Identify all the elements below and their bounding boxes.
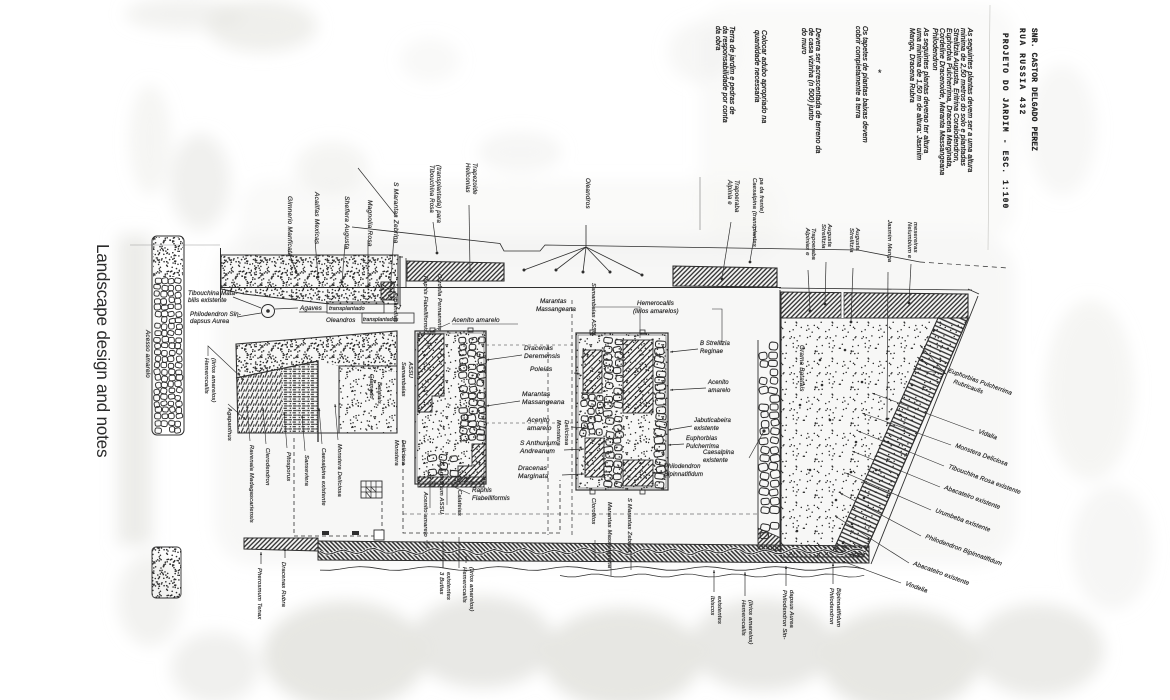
svg-text:existente: existente bbox=[694, 426, 719, 432]
svg-text:Ravenala Madagascariensis: Ravenala Madagascariensis bbox=[248, 445, 254, 523]
svg-text:existentes: existentes bbox=[716, 596, 722, 624]
svg-text:mesereiras: mesereiras bbox=[912, 222, 918, 253]
svg-text:Landscape design and notes: Landscape design and notes bbox=[93, 244, 113, 457]
svg-text:Nelumbium e: Nelumbium e bbox=[906, 222, 912, 259]
svg-text:Raphis Flabelliformis: Raphis Flabelliformis bbox=[422, 276, 428, 332]
svg-text:Ibiscos: Ibiscos bbox=[709, 596, 715, 615]
svg-text:Acenito amarelo: Acenito amarelo bbox=[451, 317, 500, 324]
svg-text:Terra de jardim e pedras de: Terra de jardim e pedras de bbox=[728, 26, 735, 114]
svg-text:Agaves: Agaves bbox=[299, 305, 323, 312]
svg-text:Colocar adubo apropriado na: Colocar adubo apropriado na bbox=[760, 30, 767, 123]
svg-text:Strelitzia Augusta, Eritrina C: Strelitzia Augusta, Eritrina Coralodendr… bbox=[952, 28, 959, 163]
svg-text:Jabuticabeira: Jabuticabeira bbox=[693, 418, 732, 424]
svg-text:Marantas: Marantas bbox=[522, 391, 551, 398]
svg-text:Pitosporus: Pitosporus bbox=[285, 452, 291, 481]
svg-text:Clorofitos: Clorofitos bbox=[590, 498, 596, 524]
svg-text:(lirios amarelos): (lirios amarelos) bbox=[633, 308, 679, 315]
svg-text:Hemerocallis: Hemerocallis bbox=[740, 600, 746, 636]
svg-text:da obra: da obra bbox=[714, 26, 721, 50]
svg-text:Monstera Deliciosa: Monstera Deliciosa bbox=[336, 444, 342, 497]
svg-text:Tibouchina Rosa: Tibouchina Rosa bbox=[428, 165, 434, 213]
svg-text:Cordelia Permanente: Cordelia Permanente bbox=[436, 274, 442, 331]
svg-text:Trapoeraba: Trapoeraba bbox=[733, 180, 739, 213]
svg-text:Strelitzia: Strelitzia bbox=[848, 228, 854, 253]
svg-text:Alpinia e: Alpinia e bbox=[726, 179, 732, 205]
svg-text:ASSU: ASSU bbox=[407, 361, 413, 379]
svg-text:3 Butias: 3 Butias bbox=[438, 572, 444, 595]
svg-text:Bipinnatifidum: Bipinnatifidum bbox=[835, 588, 841, 627]
svg-text:Trapezoide: Trapezoide bbox=[471, 163, 477, 195]
svg-text:Euphorbia Pulcherrima, Dracena: Euphorbia Pulcherrima, Dracena Marginata… bbox=[945, 28, 952, 169]
svg-text:Samambaias: Samambaias bbox=[400, 362, 406, 397]
svg-text:Bipinnatifidum: Bipinnatifidum bbox=[664, 472, 703, 478]
svg-text:Sheflera Augusta: Sheflera Augusta bbox=[343, 196, 350, 250]
svg-text:Devera ser acrescentada de ter: Devera ser acrescentada de terreno da bbox=[814, 28, 821, 154]
svg-text:Sanseviera: Sanseviera bbox=[303, 455, 309, 487]
svg-text:Dracenas Rubra: Dracenas Rubra bbox=[280, 562, 286, 608]
svg-text:dapsus Aurea: dapsus Aurea bbox=[788, 590, 794, 629]
svg-text:da responsabilidade por conta: da responsabilidade por conta bbox=[721, 26, 728, 123]
svg-text:Batatais: Batatais bbox=[376, 382, 382, 404]
svg-text:Augusta: Augusta bbox=[826, 223, 832, 248]
svg-text:Philodendron Sin-: Philodendron Sin- bbox=[190, 311, 241, 318]
svg-text:Poleias: Poleias bbox=[530, 366, 553, 373]
svg-text:(lirios amarelos): (lirios amarelos) bbox=[747, 600, 753, 645]
svg-text:Acalifas Mexicas: Acalifas Mexicas bbox=[313, 191, 320, 245]
svg-text:S Marantas Zebrina: S Marantas Zebrina bbox=[626, 498, 632, 553]
svg-text:(transplantada) para: (transplantada) para bbox=[435, 165, 441, 223]
svg-text:Vindelia: Vindelia bbox=[904, 580, 928, 595]
svg-text:Heliconias: Heliconias bbox=[464, 163, 470, 193]
svg-text:S Anthurium: S Anthurium bbox=[520, 440, 558, 447]
svg-text:Os tapetes de plantas baixas d: Os tapetes de plantas baixas devem bbox=[861, 26, 868, 143]
svg-text:Grama Batatais: Grama Batatais bbox=[798, 345, 805, 392]
svg-text:Caesalpina: Caesalpina bbox=[703, 450, 735, 456]
svg-text:Agapanthus: Agapanthus bbox=[226, 407, 232, 441]
svg-text:de casa vizinha (n 500) junto: de casa vizinha (n 500) junto bbox=[807, 28, 814, 120]
svg-text:uma minima de 1,50 m de altura: uma minima de 1,50 m de altura: Jasmim bbox=[915, 28, 922, 160]
svg-text:pa da frente): pa da frente) bbox=[758, 177, 764, 213]
svg-text:Samambaias ASSU: Samambaias ASSU bbox=[590, 283, 596, 336]
svg-text:Philodendron: Philodendron bbox=[664, 464, 701, 470]
svg-text:Clerodendron: Clerodendron bbox=[264, 448, 270, 486]
svg-text:Calateias: Calateias bbox=[456, 490, 462, 516]
svg-text:As seguintes plantas devem ser: As seguintes plantas devem ser a uma alt… bbox=[966, 27, 973, 172]
svg-text:Dracenas: Dracenas bbox=[524, 345, 554, 352]
svg-text:B Strelitzia: B Strelitzia bbox=[700, 341, 730, 347]
svg-text:Caesalpina existente: Caesalpina existente bbox=[320, 448, 326, 506]
svg-text:Cordeline Dracenoide, Maranta: Cordeline Dracenoide, Maranta Massangean… bbox=[938, 28, 945, 175]
svg-text:Marantas Massangeana: Marantas Massangeana bbox=[606, 502, 612, 569]
svg-text:Augusta: Augusta bbox=[854, 227, 860, 252]
svg-text:Tibouchina Mata-: Tibouchina Mata- bbox=[188, 290, 237, 297]
svg-text:Massangeana: Massangeana bbox=[522, 399, 565, 406]
svg-text:As seguintes plantas deverao t: As seguintes plantas deverao ter altura bbox=[922, 27, 929, 153]
svg-text:Philodendron: Philodendron bbox=[931, 28, 938, 70]
svg-text:Monstera: Monstera bbox=[555, 420, 561, 446]
svg-text:PROJETO DO JARDIM - ESC. 1:1: PROJETO DO JARDIM - ESC. 1:100 bbox=[1000, 33, 1008, 209]
svg-text:Gramado: Gramado bbox=[368, 374, 374, 399]
svg-text:Strelitzia: Strelitzia bbox=[820, 224, 826, 249]
svg-text:(lirios amarelos): (lirios amarelos) bbox=[468, 567, 474, 612]
svg-text:(lirios amarelos): (lirios amarelos) bbox=[210, 358, 216, 403]
svg-text:Hemerocallis: Hemerocallis bbox=[461, 567, 467, 603]
svg-text:minima de 2,50 metros do solo: minima de 2,50 metros do solo e plantada… bbox=[959, 28, 966, 166]
svg-text:do muro: do muro bbox=[800, 28, 807, 54]
svg-text:Acenito: Acenito bbox=[526, 417, 550, 424]
svg-text:Hemerocallis: Hemerocallis bbox=[203, 358, 209, 394]
svg-text:Deliciosa: Deliciosa bbox=[563, 420, 569, 446]
svg-text:Asplundias: Asplundias bbox=[392, 291, 398, 322]
svg-text:Andreanum: Andreanum bbox=[519, 448, 555, 455]
svg-text:S Marantas Zebrina: S Marantas Zebrina bbox=[392, 182, 399, 244]
svg-text:Acenito amarelo: Acenito amarelo bbox=[422, 491, 428, 537]
svg-text:Marantas: Marantas bbox=[540, 298, 567, 305]
svg-text:Trapoeraba: Trapoeraba bbox=[810, 228, 816, 261]
svg-text:dapsus Aurea: dapsus Aurea bbox=[190, 318, 230, 325]
svg-text:Oleandros: Oleandros bbox=[326, 317, 355, 324]
svg-text:Acesso amarelo: Acesso amarelo bbox=[144, 329, 151, 378]
svg-text:Monstera: Monstera bbox=[393, 440, 399, 466]
svg-text:existente: existente bbox=[703, 458, 728, 464]
svg-text:Hemerocallis: Hemerocallis bbox=[637, 300, 674, 307]
svg-text:Euphorbias: Euphorbias bbox=[686, 436, 717, 442]
svg-text:Gimnerio Manficata: Gimnerio Manficata bbox=[286, 196, 293, 257]
svg-text:S Anthurium ASSU: S Anthurium ASSU bbox=[438, 462, 444, 515]
svg-text:Philodendron: Philodendron bbox=[828, 588, 834, 625]
svg-text:Dracenas: Dracenas bbox=[518, 465, 548, 472]
svg-text:Raphis: Raphis bbox=[472, 487, 492, 494]
svg-text:Jasmim Manga: Jasmim Manga bbox=[886, 219, 892, 263]
svg-text:amarelo: amarelo bbox=[527, 425, 552, 432]
svg-text:Magnolia Rosa: Magnolia Rosa bbox=[366, 200, 373, 247]
svg-text:Deremensis: Deremensis bbox=[524, 353, 561, 360]
svg-text:Alpinias e: Alpinias e bbox=[804, 227, 810, 256]
svg-text:*: * bbox=[878, 68, 882, 78]
svg-text:SNR. CASTOR DELGADO PEREZ: SNR. CASTOR DELGADO PEREZ bbox=[1029, 28, 1037, 151]
svg-text:quantidade necessaria: quantidade necessaria bbox=[753, 30, 760, 103]
svg-text:RUA RUSSIA 432: RUA RUSSIA 432 bbox=[1017, 28, 1025, 116]
svg-text:Massangeana: Massangeana bbox=[536, 306, 576, 313]
svg-text:bilis existente: bilis existente bbox=[188, 297, 227, 304]
svg-text:Acenito: Acenito bbox=[707, 380, 729, 386]
svg-text:Marginata: Marginata bbox=[518, 473, 548, 480]
svg-text:Oleandros: Oleandros bbox=[584, 178, 591, 210]
svg-text:amarelo: amarelo bbox=[708, 388, 731, 394]
svg-text:Deliciosa: Deliciosa bbox=[400, 440, 406, 466]
svg-text:Flabelliformis: Flabelliformis bbox=[472, 495, 510, 502]
svg-text:Pherosmum Tenax: Pherosmum Tenax bbox=[256, 568, 262, 620]
svg-text:Manga, Dracena Rubra: Manga, Dracena Rubra bbox=[908, 28, 915, 103]
svg-text:cobrir completamente a terra: cobrir completamente a terra bbox=[854, 26, 861, 118]
svg-text:existentes: existentes bbox=[445, 572, 451, 600]
svg-text:Philodendron Sin-: Philodendron Sin- bbox=[781, 590, 787, 639]
svg-text:transplantado: transplantado bbox=[329, 306, 365, 312]
svg-text:Reginae: Reginae bbox=[700, 349, 724, 355]
